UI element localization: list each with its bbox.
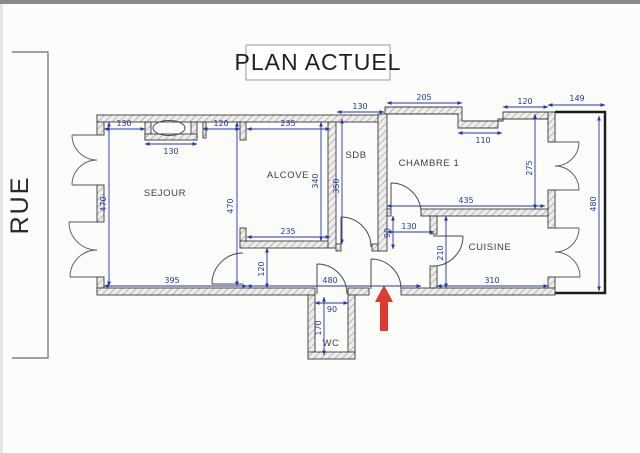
dim-label: 120 <box>213 119 228 128</box>
french-door-chambre <box>555 142 579 190</box>
french-door-cuisine <box>555 228 580 277</box>
door-sejour <box>212 253 243 284</box>
plan-title-box: PLAN ACTUEL <box>235 45 402 80</box>
dim-label: 205 <box>416 93 431 102</box>
dim-label: 275 <box>525 160 534 175</box>
street-label: RUE <box>6 176 34 235</box>
dim-label: 235 <box>280 227 295 236</box>
dim-label: 130 <box>116 119 131 128</box>
scan-left-border <box>0 4 3 453</box>
dim-label: 90 <box>327 305 337 314</box>
dim-label: 480 <box>589 196 598 211</box>
dim-label: 470 <box>226 198 235 213</box>
entrance-highlight-arrow-icon <box>375 285 393 331</box>
chimney-niche <box>145 121 197 141</box>
dim-label: 120 <box>517 97 532 106</box>
dim-label: 350 <box>332 178 341 193</box>
door-sdb <box>341 217 371 247</box>
room-label-sdb: SDB <box>345 150 366 161</box>
scanned-floor-plan-page: RUE PLAN ACTUEL <box>0 0 640 453</box>
dim-label: 170 <box>314 320 323 335</box>
dim-label: 310 <box>484 276 499 285</box>
dim-label: 395 <box>164 276 179 285</box>
door-entrance <box>371 259 401 289</box>
window-sejour-top <box>72 135 97 185</box>
dim-label: 149 <box>569 94 584 103</box>
dim-label: 470 <box>99 196 108 211</box>
dim-label: 110 <box>475 136 490 145</box>
room-label-sejour: SEJOUR <box>144 188 186 199</box>
room-label-chambre: CHAMBRE 1 <box>399 158 460 169</box>
room-label-cuisine: CUISINE <box>469 242 512 253</box>
flue-oval <box>153 121 185 136</box>
dim-label: 235 <box>280 119 295 128</box>
room-label-alcove: ALCOVE <box>267 170 309 181</box>
dim-label: 90 <box>383 228 392 238</box>
window-sejour-bottom <box>69 222 97 277</box>
dim-label: 340 <box>311 173 320 188</box>
plan-title: PLAN ACTUEL <box>235 49 402 75</box>
floor-plan: RUE PLAN ACTUEL <box>0 0 640 453</box>
dim-label: 210 <box>436 245 445 260</box>
dim-label: 130 <box>352 102 367 111</box>
dim-label: 130 <box>401 222 416 231</box>
dim-label: 120 <box>257 261 266 276</box>
dim-label: 480 <box>322 276 337 285</box>
scan-top-border <box>0 0 640 4</box>
door-chambre <box>391 183 421 213</box>
room-label-wc: WC <box>322 338 339 349</box>
dim-label: 435 <box>458 196 473 205</box>
street-label-group: RUE <box>6 52 48 358</box>
dim-label: 130 <box>163 147 178 156</box>
